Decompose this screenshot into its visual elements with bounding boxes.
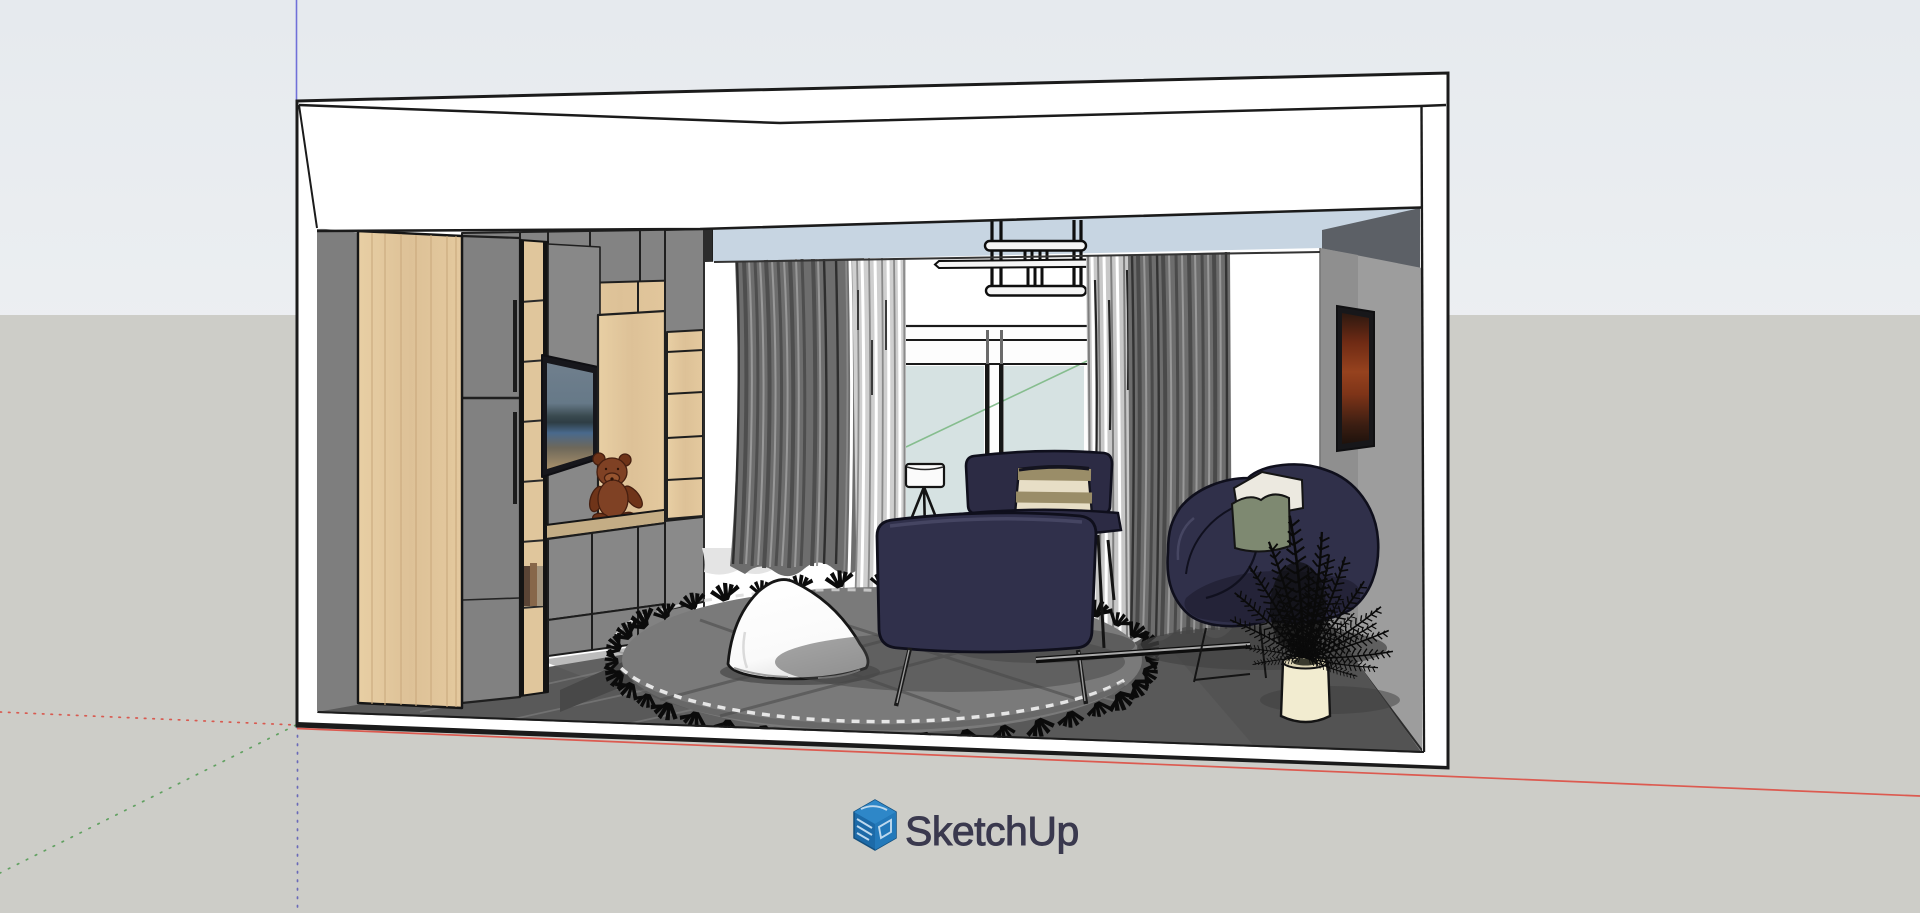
svg-text:SketchUp: SketchUp bbox=[905, 808, 1079, 854]
